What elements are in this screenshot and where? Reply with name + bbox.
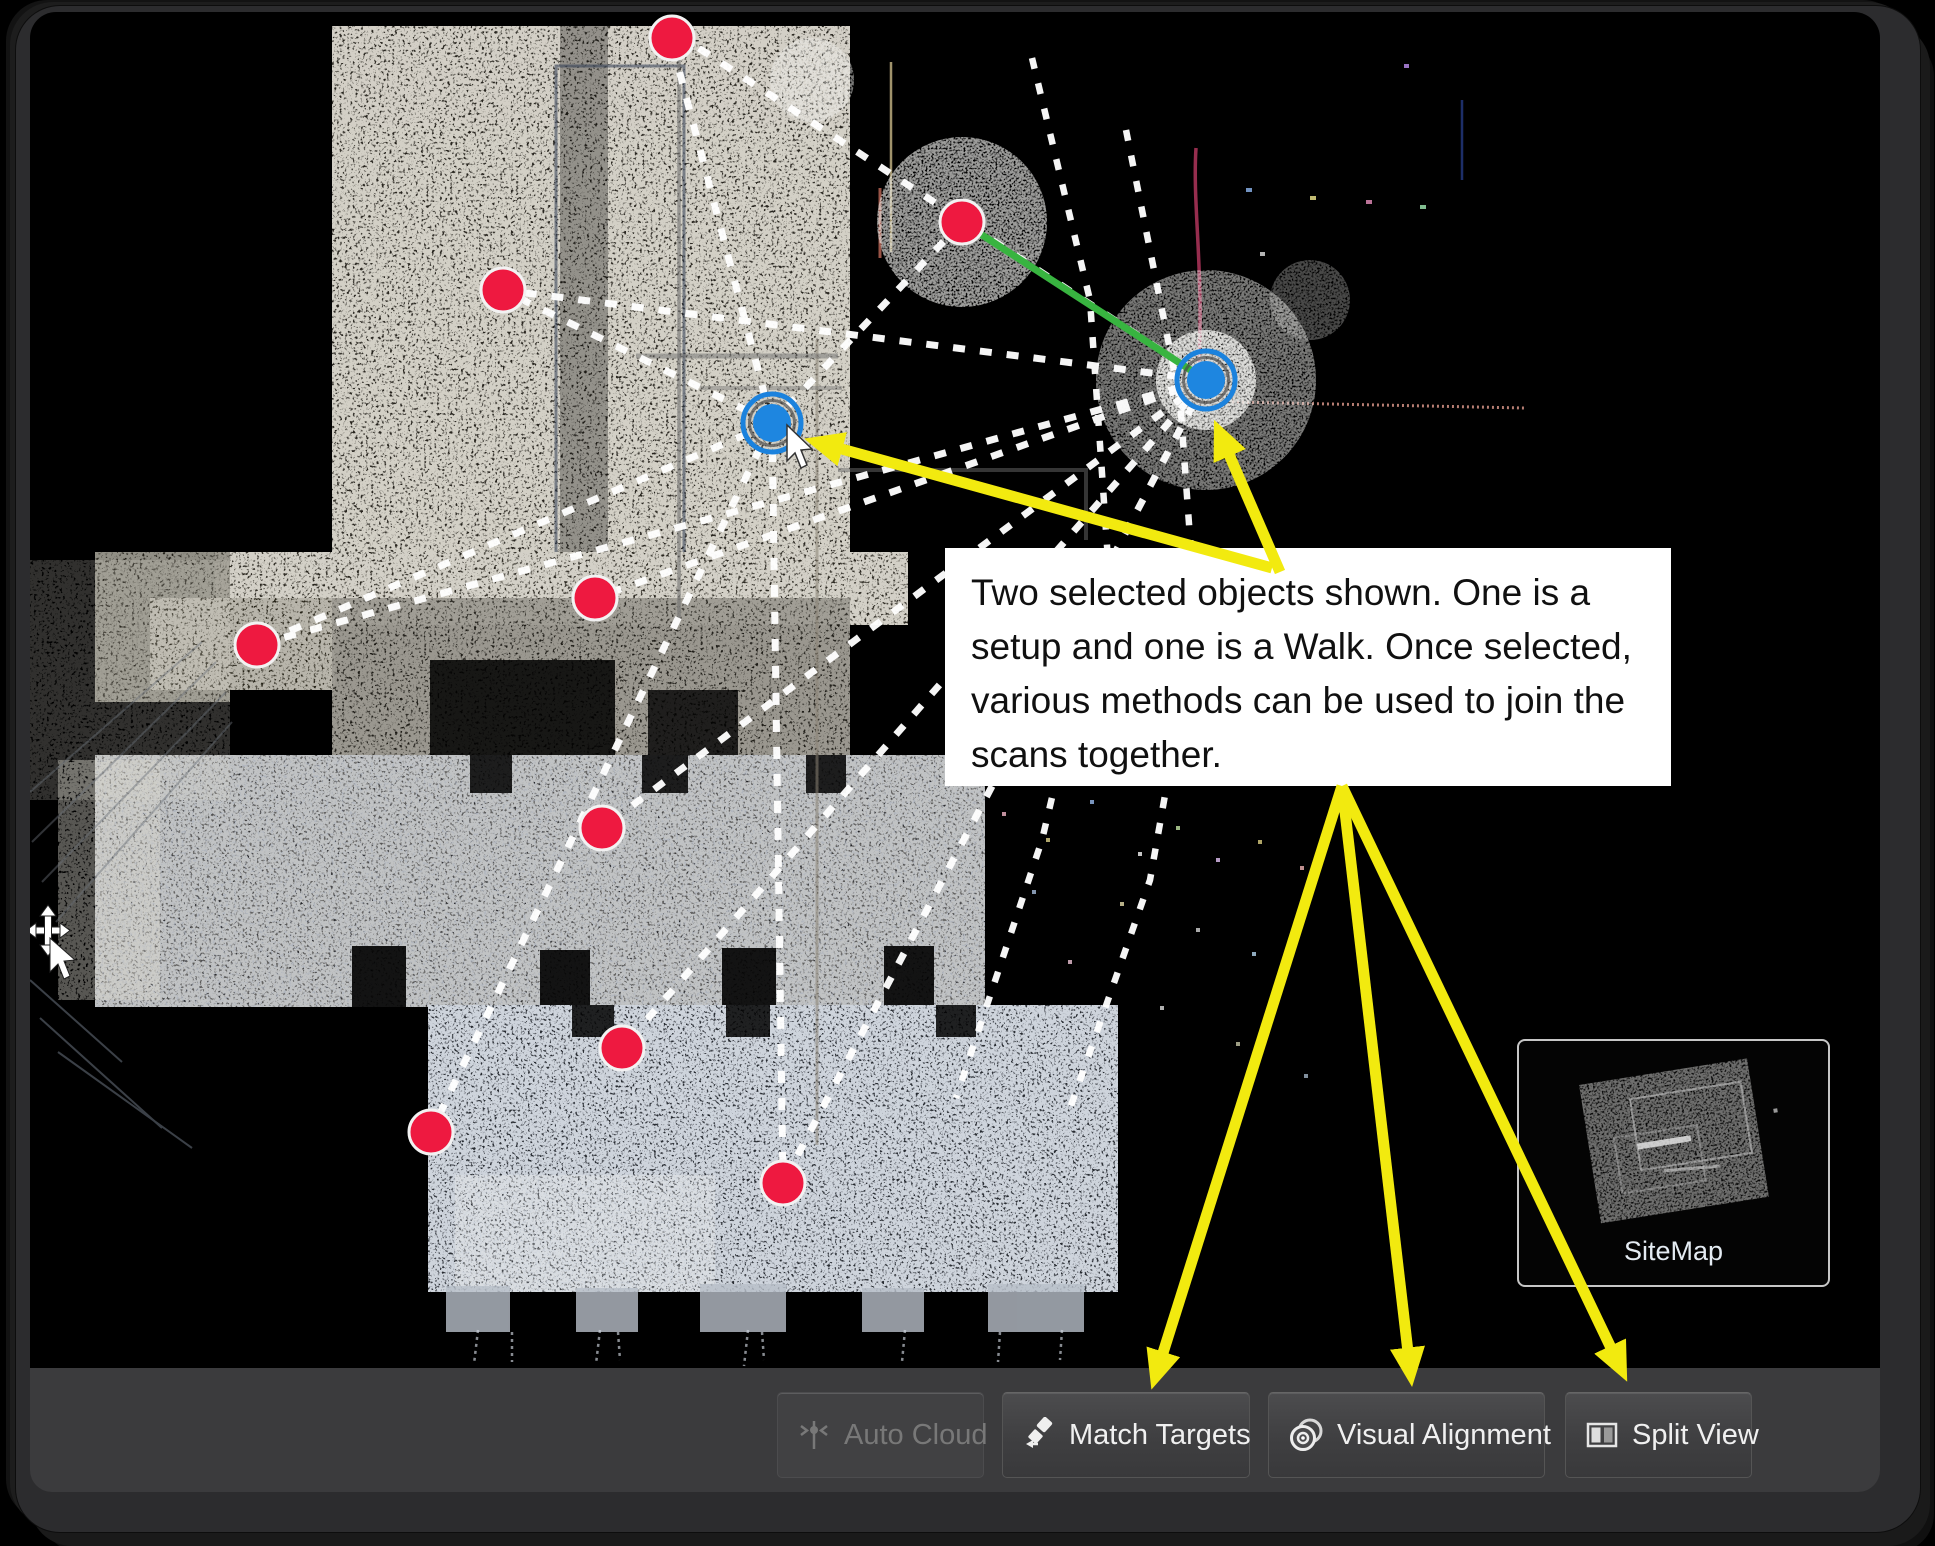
visual-alignment-icon <box>1287 1416 1325 1454</box>
match-targets-label: Match Targets <box>1069 1419 1251 1452</box>
auto-cloud-button[interactable]: Auto Cloud <box>777 1392 984 1478</box>
scan-marker-red[interactable] <box>650 16 694 60</box>
scan-marker-red[interactable] <box>761 1161 805 1205</box>
auto-cloud-label: Auto Cloud <box>844 1419 988 1452</box>
sitemap-panel[interactable]: SiteMap <box>1517 1039 1830 1287</box>
split-view-icon <box>1584 1417 1620 1453</box>
sitemap-thumbnail <box>1519 1041 1828 1241</box>
annotation-callout: Two selected objects shown. One is a set… <box>945 548 1671 786</box>
match-targets-icon <box>1021 1417 1057 1453</box>
app-window: SiteMap Two selected objects shown. One … <box>16 6 1920 1532</box>
scan-marker-red[interactable] <box>481 268 525 312</box>
sitemap-label: SiteMap <box>1519 1236 1828 1267</box>
match-targets-button[interactable]: Match Targets <box>1002 1392 1250 1478</box>
split-view-label: Split View <box>1632 1419 1759 1452</box>
scan-marker-red[interactable] <box>580 806 624 850</box>
scan-marker-red[interactable] <box>409 1110 453 1154</box>
visual-alignment-label: Visual Alignment <box>1337 1419 1551 1452</box>
visual-alignment-button[interactable]: Visual Alignment <box>1268 1392 1545 1478</box>
split-view-button[interactable]: Split View <box>1565 1392 1752 1478</box>
auto-cloud-icon <box>796 1417 832 1453</box>
registration-toolbar: Auto Cloud Match Targets Visual Alignmen… <box>30 1368 1880 1492</box>
scan-marker-red[interactable] <box>573 576 617 620</box>
scan-marker-red[interactable] <box>600 1026 644 1070</box>
screenshot-stage: SiteMap Two selected objects shown. One … <box>0 0 1935 1546</box>
annotation-text: Two selected objects shown. One is a set… <box>971 566 1645 782</box>
scan-marker-red[interactable] <box>235 623 279 667</box>
scan-marker-red[interactable] <box>940 200 984 244</box>
scan-viewport[interactable]: SiteMap Two selected objects shown. One … <box>30 12 1880 1368</box>
